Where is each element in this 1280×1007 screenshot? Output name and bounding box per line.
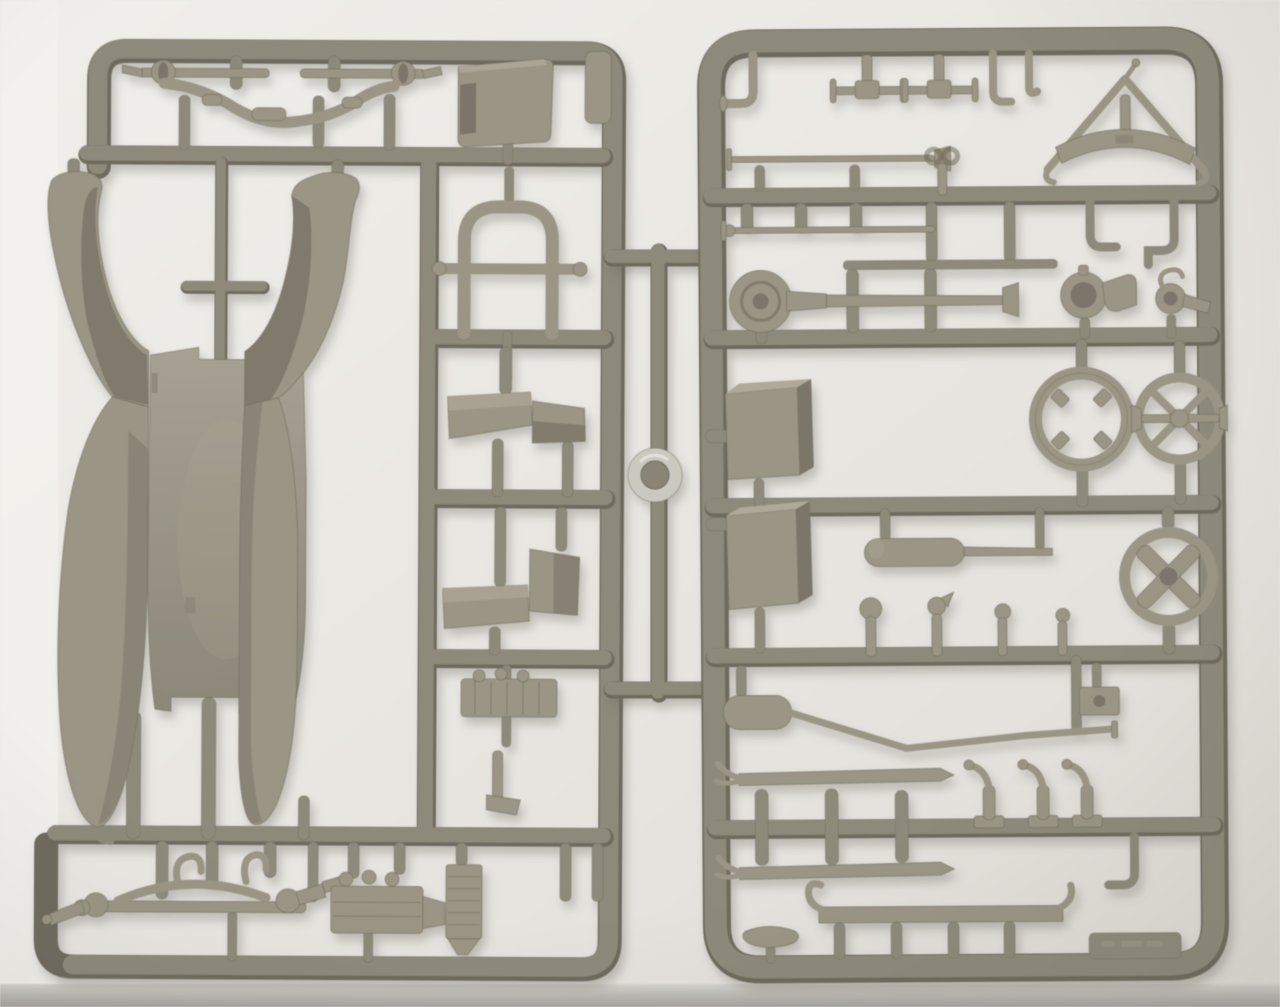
photo-stage (0, 0, 1280, 1007)
sprue-photo (0, 0, 1280, 1007)
vignette-overlay (0, 0, 1280, 1007)
